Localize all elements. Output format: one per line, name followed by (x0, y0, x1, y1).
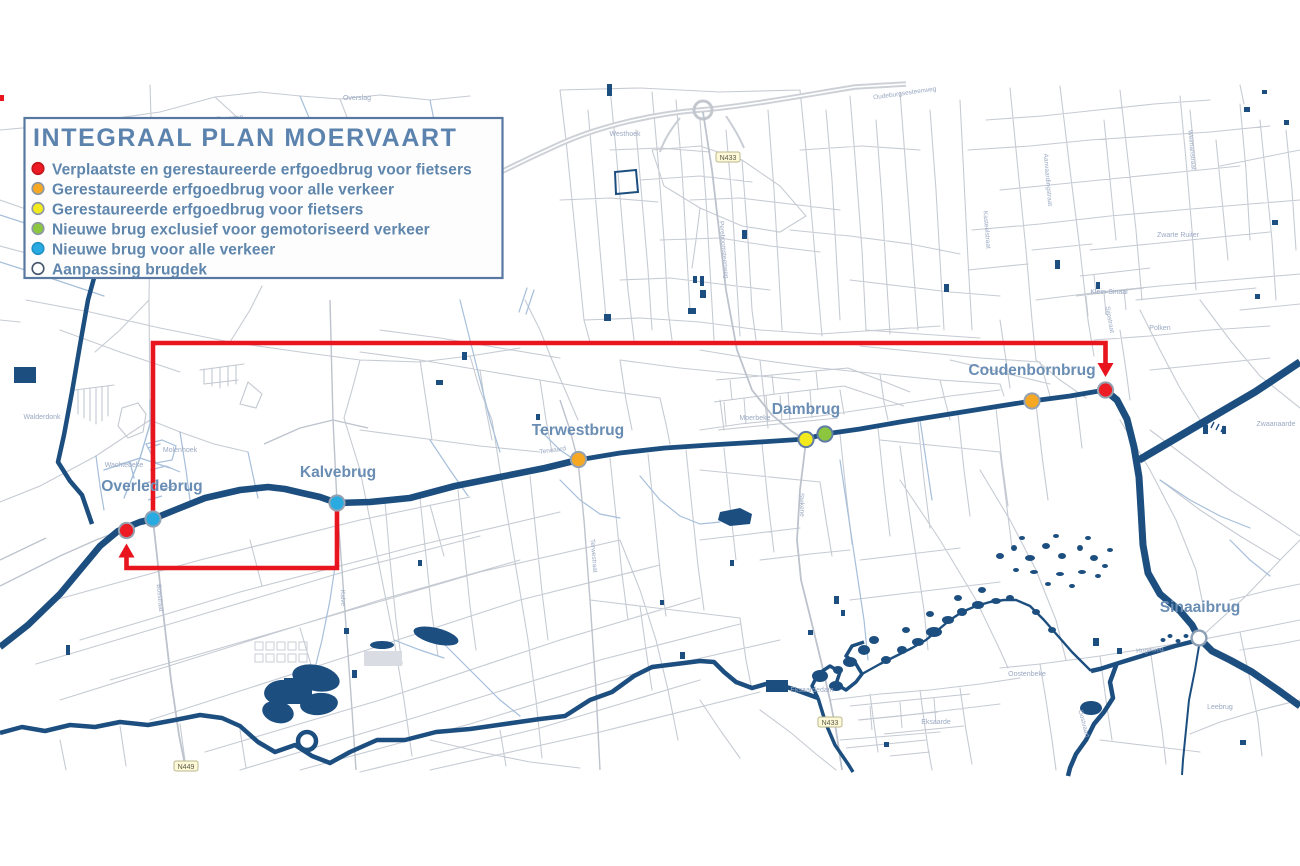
svg-text:Gerestaureerde erfgoedbrug voo: Gerestaureerde erfgoedbrug voor fietsers (52, 202, 364, 219)
svg-text:Eksaardedam: Eksaardedam (790, 687, 833, 694)
svg-text:Overledebrug: Overledebrug (101, 478, 202, 495)
svg-text:Oostenbeke: Oostenbeke (1008, 671, 1046, 678)
svg-text:Sinaaibrug: Sinaaibrug (1160, 599, 1241, 616)
svg-text:Nieuwe brug voor alle verkeer: Nieuwe brug voor alle verkeer (52, 242, 275, 259)
svg-text:Moerbeke: Moerbeke (739, 415, 770, 422)
svg-text:Kalve: Kalve (339, 590, 347, 607)
svg-text:N433: N433 (822, 720, 839, 727)
svg-text:Kalvebrug: Kalvebrug (300, 464, 376, 481)
svg-text:Klein-Sinaai: Klein-Sinaai (1090, 289, 1128, 296)
svg-text:Overslag: Overslag (343, 95, 371, 102)
svg-text:Zwarte Ruiter: Zwarte Ruiter (1157, 232, 1200, 239)
svg-text:Polken: Polken (1149, 325, 1171, 332)
svg-text:N433: N433 (720, 155, 737, 162)
svg-text:Stekene: Stekene (798, 493, 806, 517)
svg-text:N449: N449 (178, 764, 195, 771)
svg-text:Westhoek: Westhoek (610, 131, 641, 138)
svg-text:Gerestaureerde erfgoedbrug voo: Gerestaureerde erfgoedbrug voor alle ver… (52, 182, 394, 199)
svg-text:Verplaatste en gerestaureerde: Verplaatste en gerestaureerde erfgoedbru… (52, 162, 472, 179)
svg-text:Walderdonk: Walderdonk (23, 414, 61, 421)
svg-text:Eksaarde: Eksaarde (921, 719, 951, 726)
svg-text:Dambrug: Dambrug (772, 401, 840, 418)
svg-text:Zwaanaarde: Zwaanaarde (1257, 421, 1296, 428)
svg-text:Molenhoek: Molenhoek (163, 447, 198, 454)
svg-text:Aanpassing brugdek: Aanpassing brugdek (52, 262, 207, 279)
svg-text:Nieuwe brug exclusief voor gem: Nieuwe brug exclusief voor gemotoriseerd… (52, 222, 430, 239)
svg-text:Terwestbrug: Terwestbrug (532, 422, 624, 439)
svg-text:Leebrug: Leebrug (1207, 704, 1233, 711)
svg-text:Coudenbornbrug: Coudenbornbrug (968, 362, 1095, 379)
svg-text:INTEGRAAL PLAN MOERVAART: INTEGRAAL PLAN MOERVAART (33, 124, 458, 152)
svg-text:Wachtebeke: Wachtebeke (105, 462, 144, 469)
